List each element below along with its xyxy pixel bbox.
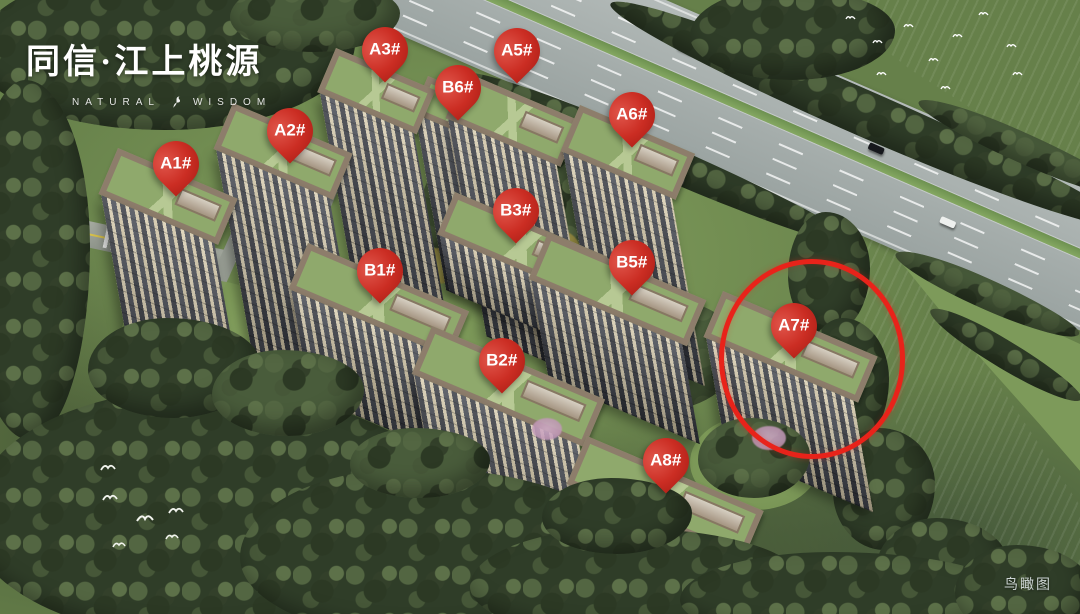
brand-title: 同信·江上桃源	[26, 34, 271, 83]
marker-a7[interactable]: A7#	[771, 303, 817, 349]
map-pin-icon: A7#	[761, 293, 826, 358]
bird-icon	[100, 462, 116, 471]
map-pin-icon: B5#	[599, 230, 664, 295]
marker-label: A8#	[650, 450, 681, 470]
map-pin-icon: B6#	[425, 55, 490, 120]
marker-a2[interactable]: A2#	[267, 108, 313, 154]
marker-label: B1#	[364, 260, 395, 280]
marker-label: B5#	[616, 252, 647, 272]
brand-logo: 同信·江上桃源 NATURAL WISDOM	[26, 34, 271, 110]
bird-icon	[168, 505, 184, 514]
marker-label: B3#	[500, 200, 531, 220]
bird-icon	[940, 84, 951, 90]
marker-a5[interactable]: A5#	[494, 28, 540, 74]
bird-icon	[1006, 42, 1017, 48]
bird-icon	[876, 70, 887, 76]
car	[939, 216, 956, 229]
view-caption: 鸟瞰图	[1004, 574, 1052, 594]
tagline-wisdom: WISDOM	[193, 97, 271, 108]
marker-a1[interactable]: A1#	[153, 141, 199, 187]
marker-a6[interactable]: A6#	[609, 92, 655, 138]
bird-icon	[845, 14, 856, 20]
marker-label: A2#	[274, 120, 305, 140]
marker-b6[interactable]: B6#	[435, 65, 481, 111]
map-pin-icon: B1#	[347, 238, 412, 303]
aerial-site-plan: A1#A2#A3#B6#A5#A6#B3#B1#B5#B2#A7#A8# 同信·…	[0, 0, 1080, 614]
map-pin-icon: A3#	[352, 17, 417, 82]
tagline-natural: NATURAL	[72, 97, 160, 108]
blossom-tree	[532, 418, 562, 440]
map-pin-icon: A5#	[484, 18, 549, 83]
map-pin-icon: A6#	[599, 82, 664, 147]
bird-icon	[903, 22, 914, 28]
marker-a3[interactable]: A3#	[362, 27, 408, 73]
marker-b5[interactable]: B5#	[609, 240, 655, 286]
marker-b3[interactable]: B3#	[493, 188, 539, 234]
highlight-circle-a7	[719, 259, 905, 459]
flamingo-icon	[169, 95, 184, 110]
marker-label: B2#	[486, 350, 517, 370]
map-pin-icon: A8#	[633, 428, 698, 493]
marker-label: A7#	[778, 315, 809, 335]
bird-icon	[978, 10, 989, 16]
brand-tagline: NATURAL WISDOM	[26, 95, 271, 110]
marker-b1[interactable]: B1#	[357, 248, 403, 294]
bird-icon	[928, 56, 939, 62]
marker-label: A3#	[369, 39, 400, 59]
bird-icon	[952, 32, 963, 38]
marker-label: A5#	[501, 40, 532, 60]
map-pin-icon: A1#	[143, 131, 208, 196]
bird-icon	[136, 512, 154, 522]
bird-icon	[1012, 70, 1023, 76]
bird-icon	[165, 532, 179, 540]
marker-label: A1#	[160, 153, 191, 173]
bird-icon	[112, 540, 126, 548]
bird-icon	[102, 492, 118, 501]
map-pin-icon: B3#	[483, 178, 548, 243]
marker-label: A6#	[616, 104, 647, 124]
marker-a8[interactable]: A8#	[643, 438, 689, 484]
map-pin-icon: B2#	[469, 328, 534, 393]
marker-b2[interactable]: B2#	[479, 338, 525, 384]
bird-icon	[872, 38, 883, 44]
marker-label: B6#	[442, 77, 473, 97]
